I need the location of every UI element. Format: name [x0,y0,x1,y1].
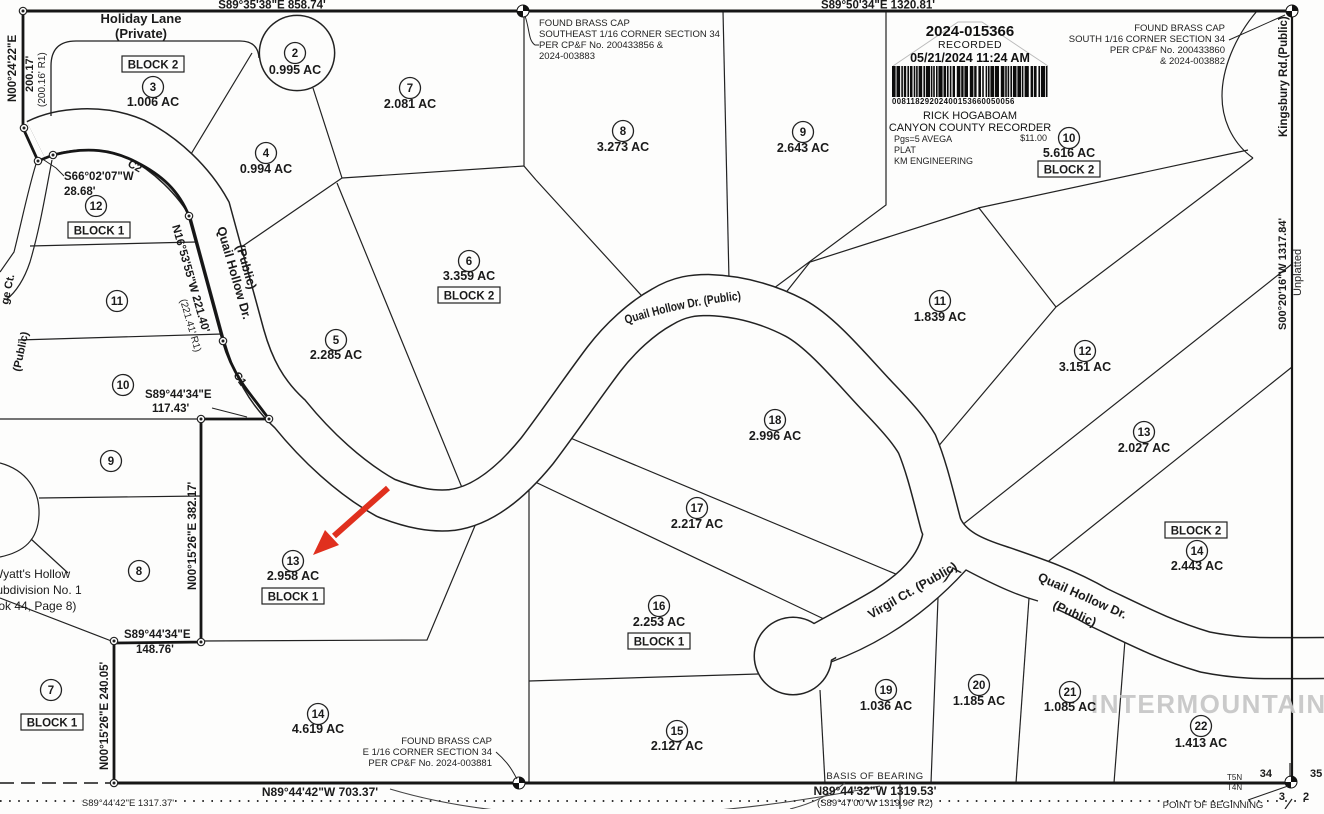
svg-text:1.413 AC: 1.413 AC [1175,736,1227,750]
svg-text:20: 20 [973,680,986,692]
svg-text:BLOCK 1: BLOCK 1 [27,718,78,730]
svg-text:S00°20'16"W 1317.84': S00°20'16"W 1317.84' [1277,218,1289,330]
svg-text:3: 3 [1279,791,1285,803]
svg-text:0.995 AC: 0.995 AC [269,63,321,77]
svg-text:T4N: T4N [1227,783,1242,792]
svg-text:14: 14 [1191,546,1204,558]
svg-text:1.006 AC: 1.006 AC [127,95,179,109]
svg-text:BLOCK 2: BLOCK 2 [128,60,178,72]
svg-text:11: 11 [934,296,947,308]
svg-text:4: 4 [263,148,270,160]
svg-text:KM ENGINEERING: KM ENGINEERING [894,156,973,166]
svg-text:13: 13 [287,556,300,568]
svg-text:10: 10 [1063,133,1076,145]
svg-text:8: 8 [620,126,627,138]
svg-text:RECORDED: RECORDED [938,39,1002,51]
svg-text:$11.00: $11.00 [1020,133,1047,143]
svg-text:17: 17 [691,503,704,515]
svg-text:3: 3 [150,82,156,94]
svg-text:00811829202400153660050056: 00811829202400153660050056 [892,97,1015,106]
svg-text:3.151 AC: 3.151 AC [1059,360,1111,374]
svg-text:(S89°47'00"W 1319.96' R2): (S89°47'00"W 1319.96' R2) [817,798,933,809]
svg-text:3.273 AC: 3.273 AC [597,140,649,154]
svg-text:5.616 AC: 5.616 AC [1043,146,1095,160]
svg-text:2.285 AC: 2.285 AC [310,348,362,362]
svg-text:18: 18 [769,415,782,427]
svg-text:Wyatt's Hollow: Wyatt's Hollow [0,567,70,581]
svg-text:1.839 AC: 1.839 AC [914,310,966,324]
svg-text:Holiday Lane: Holiday Lane [101,11,182,26]
svg-text:3.359 AC: 3.359 AC [443,269,495,283]
svg-text:N89°44'32"W 1319.53': N89°44'32"W 1319.53' [814,784,937,798]
svg-text:Unplatted: Unplatted [1292,249,1304,296]
svg-text:2.081 AC: 2.081 AC [384,97,436,111]
svg-text:S89°44'34"E: S89°44'34"E [124,629,191,641]
svg-text:Subdivision No. 1: Subdivision No. 1 [0,583,82,597]
svg-text:T5N: T5N [1227,773,1242,782]
svg-text:E 1/16 CORNER SECTION 34: E 1/16 CORNER SECTION 34 [363,747,492,758]
svg-text:1.085 AC: 1.085 AC [1044,700,1096,714]
svg-text:05/21/2024 11:24 AM: 05/21/2024 11:24 AM [910,51,1030,65]
svg-text:S66°02'07"W: S66°02'07"W [64,171,134,183]
svg-text:1.185 AC: 1.185 AC [953,694,1005,708]
svg-text:BLOCK 2: BLOCK 2 [1044,165,1094,177]
svg-text:2.643 AC: 2.643 AC [777,141,829,155]
svg-text:(Private): (Private) [115,26,167,41]
svg-text:7: 7 [48,685,54,697]
svg-text:13: 13 [1138,427,1151,439]
svg-text:21: 21 [1064,687,1077,699]
svg-text:SOUTH 1/16 CORNER SECTION: SOUTH 1/16 CORNER SECTION 34 [1069,34,1225,45]
svg-text:19: 19 [880,685,893,697]
svg-text:(Book 44, Page 8): (Book 44, Page 8) [0,599,76,613]
svg-text:0.994 AC: 0.994 AC [240,162,292,176]
svg-text:S89°44'42"E 1317.37': S89°44'42"E 1317.37' [82,798,174,809]
svg-text:2.253 AC: 2.253 AC [633,615,685,629]
svg-text:15: 15 [671,726,684,738]
svg-text:N00°15'26"E 240.05': N00°15'26"E 240.05' [99,661,111,770]
svg-text:11: 11 [111,296,124,308]
svg-text:N89°44'42"W 703.37': N89°44'42"W 703.37' [262,785,378,799]
svg-text:FOUND BRASS CAP: FOUND BRASS CAP [539,18,630,29]
svg-text:5: 5 [333,335,340,347]
svg-text:34: 34 [1260,768,1273,780]
svg-text:2.027 AC: 2.027 AC [1118,441,1170,455]
svg-text:8: 8 [136,566,143,578]
svg-text:PER CP&F No. 2024-003881: PER CP&F No. 2024-003881 [368,758,492,769]
svg-text:2024-015366: 2024-015366 [926,23,1014,40]
svg-text:2024-003883: 2024-003883 [539,51,595,62]
svg-text:12: 12 [1079,346,1092,358]
svg-text:14: 14 [312,709,325,721]
svg-text:2.958 AC: 2.958 AC [267,569,319,583]
svg-text:2: 2 [292,48,298,60]
svg-text:1.036 AC: 1.036 AC [860,699,912,713]
svg-text:16: 16 [653,601,666,613]
svg-text:FOUND BRASS CAP: FOUND BRASS CAP [1134,23,1225,34]
svg-text:6: 6 [466,256,472,268]
svg-text:7: 7 [407,83,413,95]
svg-text:2.996 AC: 2.996 AC [749,429,801,443]
svg-text:& 2024-003882: & 2024-003882 [1160,56,1225,67]
svg-text:N00°24'22"E: N00°24'22"E [7,35,19,102]
svg-text:PLAT: PLAT [894,145,916,155]
svg-text:BLOCK 1: BLOCK 1 [634,637,685,649]
svg-text:9: 9 [800,127,806,139]
svg-text:9: 9 [108,456,114,468]
svg-text:2.443 AC: 2.443 AC [1171,559,1223,573]
svg-text:22: 22 [1195,721,1208,733]
svg-text:S89°44'34"E: S89°44'34"E [145,389,212,401]
svg-text:2.127 AC: 2.127 AC [651,739,703,753]
svg-text:(200.16' R1): (200.16' R1) [37,52,48,107]
svg-text:Kingsbury Rd.(Public): Kingsbury Rd.(Public) [1278,16,1290,137]
svg-text:35: 35 [1310,768,1322,780]
svg-text:BLOCK 1: BLOCK 1 [268,592,319,604]
svg-text:N00°15'26"E 382.17': N00°15'26"E 382.17' [187,481,199,590]
svg-text:12: 12 [90,201,103,213]
svg-text:200.17': 200.17' [24,55,36,92]
svg-text:Pgs=5 AVEGA: Pgs=5 AVEGA [894,134,952,144]
svg-text:BLOCK 1: BLOCK 1 [74,226,125,238]
svg-text:BLOCK 2: BLOCK 2 [1171,526,1221,538]
svg-text:BASIS OF BEARING: BASIS OF BEARING [826,771,923,782]
svg-text:2: 2 [1303,791,1309,803]
svg-text:RICK HOGABOAM: RICK HOGABOAM [923,110,1017,122]
svg-text:PER CP&F No. 200433860: PER CP&F No. 200433860 [1110,45,1225,56]
svg-text:FOUND BRASS CAP: FOUND BRASS CAP [401,736,492,747]
svg-text:POINT OF BEGINNING: POINT OF BEGINNING [1163,800,1264,809]
svg-text:BLOCK 2: BLOCK 2 [444,291,494,303]
svg-text:S89°50'34"E 1320.81': S89°50'34"E 1320.81' [821,0,935,12]
svg-text:4.619 AC: 4.619 AC [292,722,344,736]
svg-text:10: 10 [117,380,130,392]
svg-text:SOUTHEAST 1/16 CORNER SECTI: SOUTHEAST 1/16 CORNER SECTION 34 [539,29,720,40]
svg-text:117.43': 117.43' [152,403,190,415]
svg-text:PER CP&F No. 200433856 &: PER CP&F No. 200433856 & [539,40,664,51]
svg-text:2.217 AC: 2.217 AC [671,517,723,531]
svg-text:INTERMOUNTAIN: INTERMOUNTAIN [1091,689,1324,719]
svg-text:S89°35'38"E 858.74': S89°35'38"E 858.74' [218,0,326,12]
svg-text:148.76': 148.76' [136,644,174,656]
